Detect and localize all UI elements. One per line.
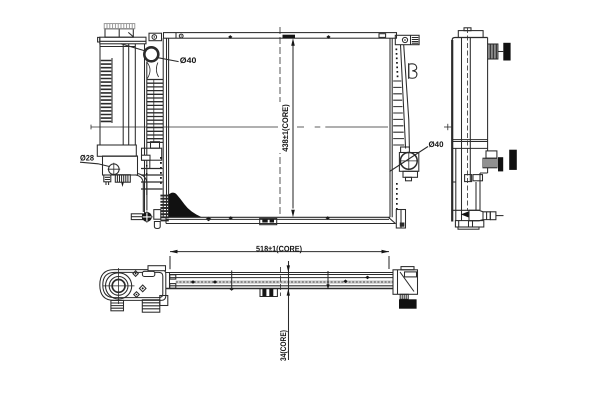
svg-text:34(CORE): 34(CORE)	[279, 330, 288, 361]
svg-text:438±1(CORE): 438±1(CORE)	[281, 104, 290, 152]
svg-text:Ø40: Ø40	[180, 56, 197, 65]
svg-text:518±1(CORE): 518±1(CORE)	[256, 245, 302, 254]
svg-text:Ø28: Ø28	[80, 154, 95, 163]
svg-text:Ø40: Ø40	[429, 140, 445, 149]
